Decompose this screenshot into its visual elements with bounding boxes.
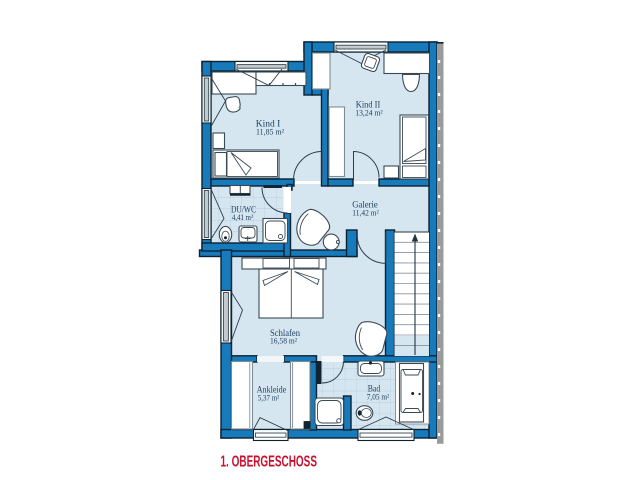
svg-text:5,37 m²: 5,37 m² xyxy=(258,394,280,403)
svg-text:4,41 m²: 4,41 m² xyxy=(232,213,253,222)
svg-text:11,85 m²: 11,85 m² xyxy=(256,127,285,136)
svg-text:1. OBERGESCHOSS: 1. OBERGESCHOSS xyxy=(221,454,318,471)
svg-text:7,05 m²: 7,05 m² xyxy=(367,393,390,402)
svg-text:11,42 m²: 11,42 m² xyxy=(352,209,379,218)
svg-text:16,58 m²: 16,58 m² xyxy=(270,337,298,346)
svg-text:13,24 m²: 13,24 m² xyxy=(355,108,383,117)
